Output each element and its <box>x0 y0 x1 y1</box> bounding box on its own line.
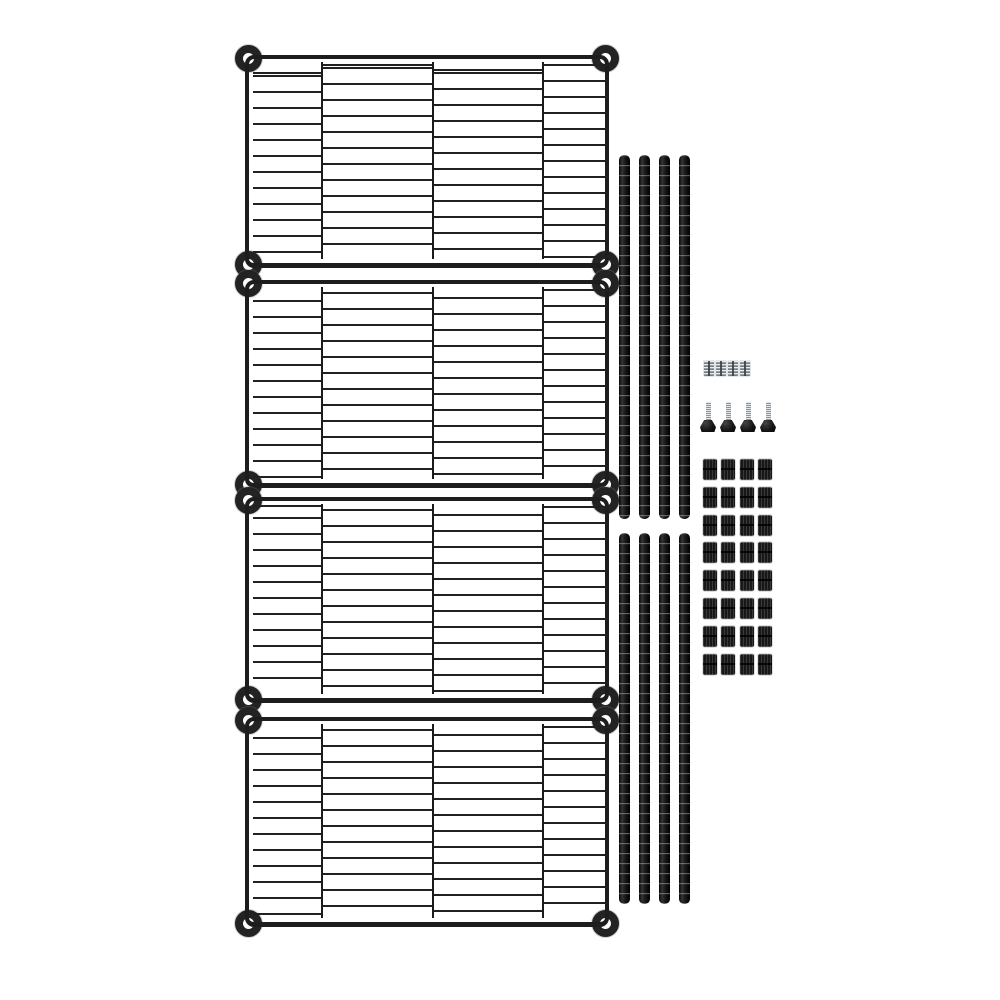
shelf-sleeve-clip <box>740 459 754 480</box>
shelf-sleeve-clip <box>758 542 772 563</box>
shelf-sleeve-clip <box>740 487 754 508</box>
pole-coupler <box>740 361 750 376</box>
shelf-sleeve-clip <box>740 515 754 536</box>
shelf-sleeve-clip <box>721 626 735 647</box>
shelf-sleeve-clip <box>758 654 772 675</box>
shelf-sleeve-clip <box>740 626 754 647</box>
shelf-sleeve-clip <box>721 542 735 563</box>
hardware-layer <box>0 0 1000 1000</box>
foot-base <box>740 420 756 432</box>
foot-base <box>700 420 716 432</box>
shelf-sleeve-clip <box>703 570 717 591</box>
shelf-sleeve-clip <box>721 598 735 619</box>
shelf-sleeve-clip <box>703 487 717 508</box>
shelf-sleeve-clip <box>721 459 735 480</box>
shelf-sleeve-clip <box>703 459 717 480</box>
shelf-sleeve-clip <box>703 515 717 536</box>
product-photo-shelving-kit <box>0 0 1000 1000</box>
pole-coupler <box>728 361 738 376</box>
shelf-sleeve-clip <box>703 542 717 563</box>
shelf-sleeve-clip <box>721 515 735 536</box>
shelf-sleeve-clip <box>758 459 772 480</box>
shelf-sleeve-clip <box>721 487 735 508</box>
shelf-sleeve-clip <box>721 570 735 591</box>
foot-screw-stem <box>746 402 751 421</box>
shelf-sleeve-clip <box>721 654 735 675</box>
shelf-sleeve-clip <box>740 542 754 563</box>
shelf-sleeve-clip <box>740 654 754 675</box>
shelf-sleeve-clip <box>758 570 772 591</box>
shelf-sleeve-clip <box>758 598 772 619</box>
shelf-sleeve-clip <box>740 598 754 619</box>
shelf-sleeve-clip <box>758 515 772 536</box>
shelf-sleeve-clip <box>758 626 772 647</box>
foot-screw-stem <box>706 402 711 421</box>
foot-base <box>760 420 776 432</box>
foot-screw-stem <box>766 402 771 421</box>
foot-screw-stem <box>726 402 731 421</box>
pole-coupler <box>704 361 714 376</box>
shelf-sleeve-clip <box>740 570 754 591</box>
foot-base <box>720 420 736 432</box>
pole-coupler <box>716 361 726 376</box>
shelf-sleeve-clip <box>703 654 717 675</box>
shelf-sleeve-clip <box>758 487 772 508</box>
shelf-sleeve-clip <box>703 626 717 647</box>
shelf-sleeve-clip <box>703 598 717 619</box>
